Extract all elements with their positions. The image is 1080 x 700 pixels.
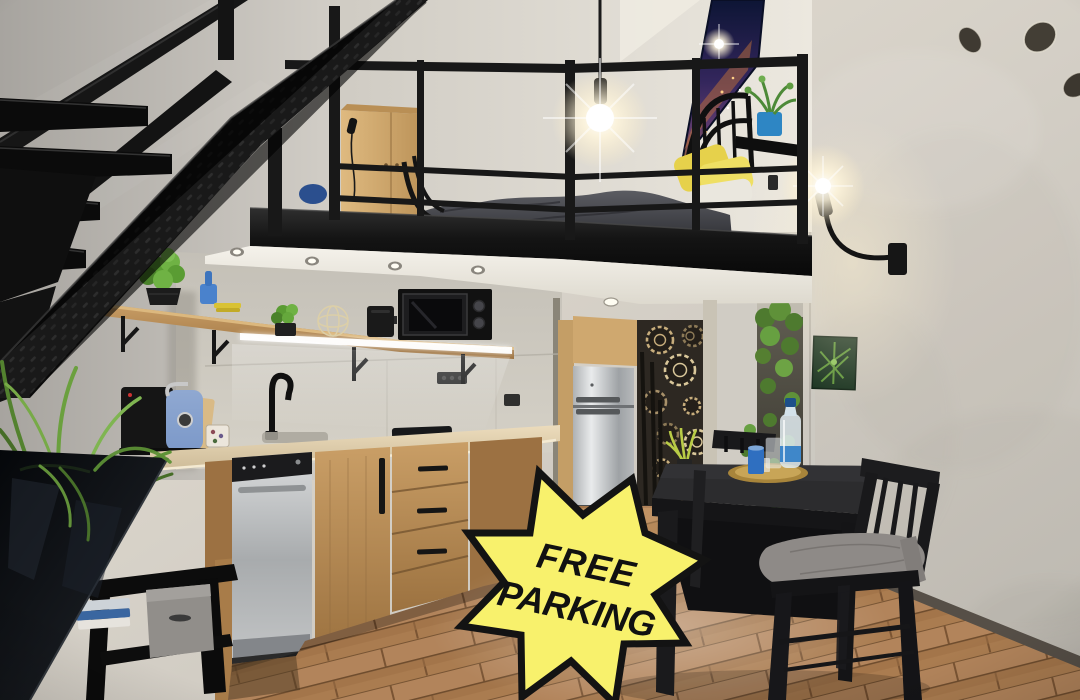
apartment-photo: FREE PARKING xyxy=(0,0,1080,700)
apartment-photo-canvas: FREE PARKING xyxy=(0,0,1080,700)
